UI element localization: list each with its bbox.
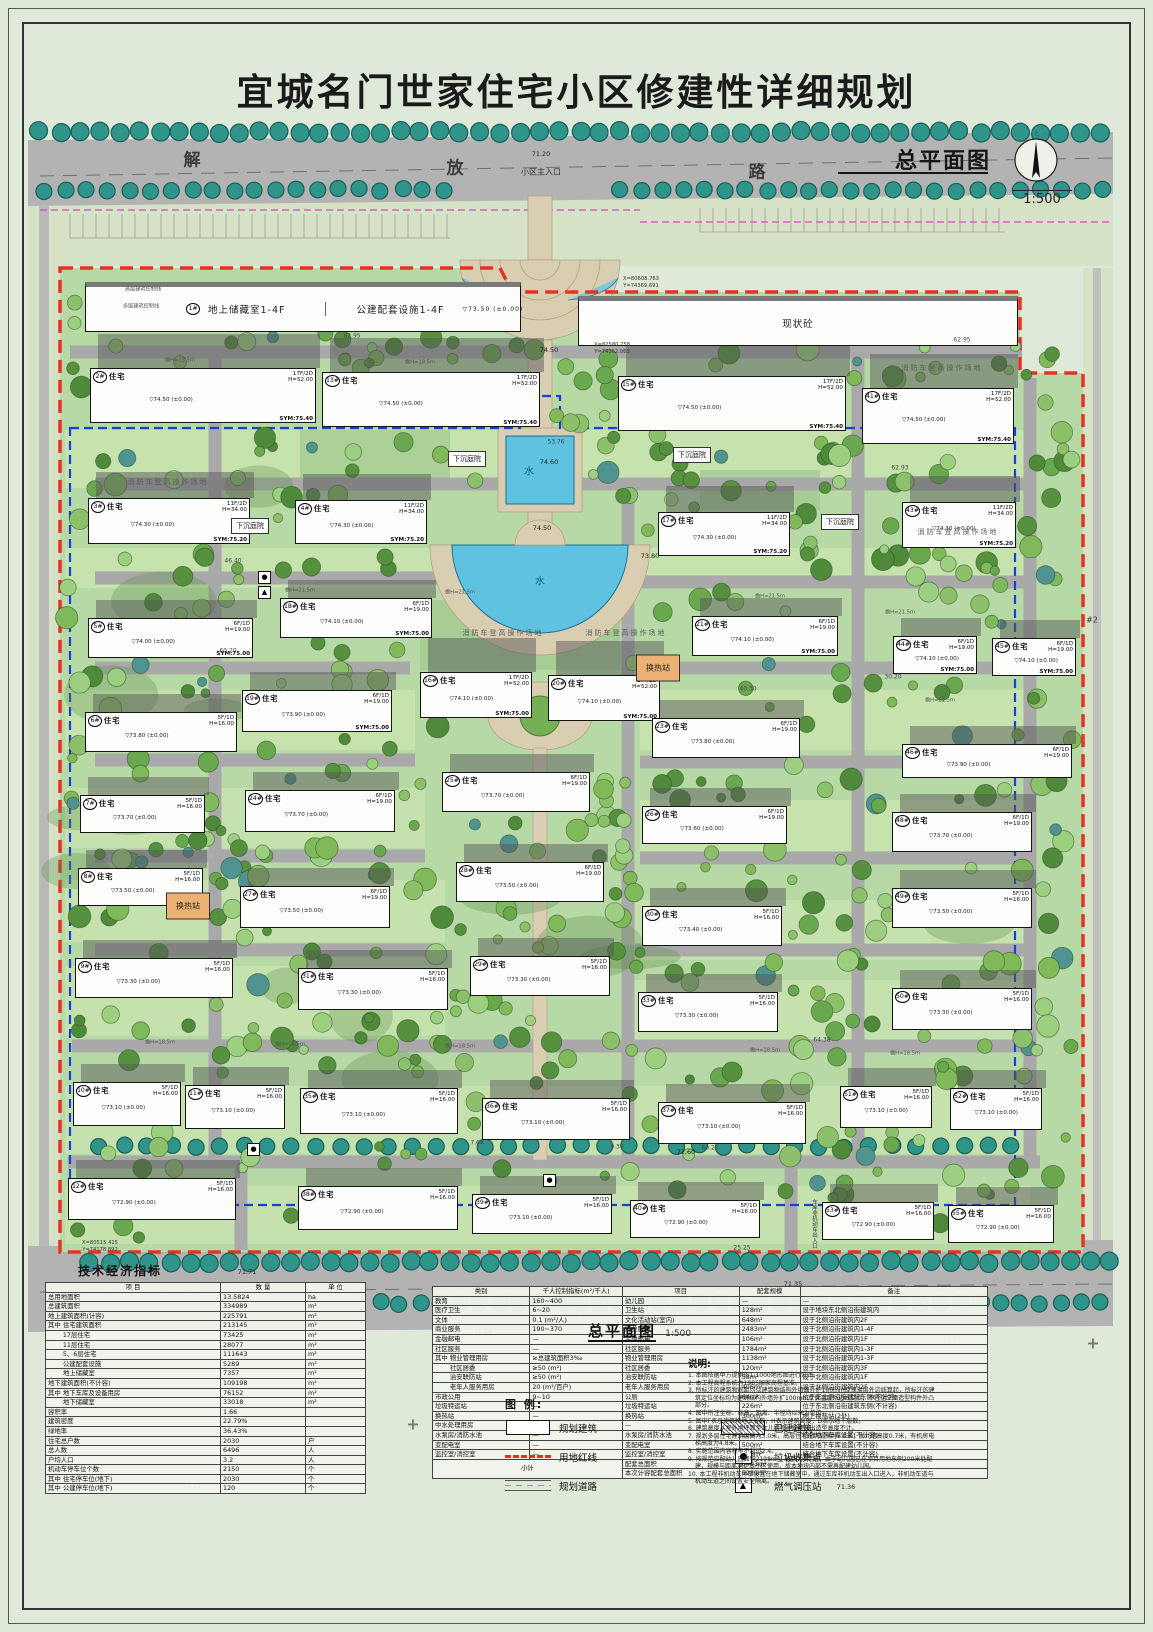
building-number: 7# [83,798,97,810]
building-shadow [250,672,396,690]
note-item: 8. 实施范围内容积率不超过2.4。 [688,1448,938,1456]
building-floors-height: 5F/1DH=16.00 [153,1085,178,1098]
note-item: 10. 本工程非机动车停车设置在地下储藏室中，通过车库非机动车出入口进入，非机动… [688,1471,938,1486]
annotation-tiny: 高层建筑控制线 [125,286,161,293]
building-elevation: ▽74.50 (±0.00) [379,401,423,407]
annotation-fire: 消防车登高操作场地 [128,477,209,487]
building-type-label: 住宅 [658,996,674,1006]
building-elevation: ▽73.40 (±0.00) [679,927,723,933]
building-type-label: 住宅 [662,810,678,820]
annotation-elev: 74.60 [540,458,559,466]
annotation-cross: + [406,1415,419,1434]
building-floors-height: 5F/1DH=16.00 [257,1088,282,1101]
building-type-label: 住宅 [672,722,688,732]
building-type-label: 住宅 [502,1102,518,1112]
building-sym-elevation: SYM:75.40 [809,424,843,430]
building-number: 45# [995,641,1010,653]
annotation-elev: 74.50 [540,346,559,354]
building-type-label: 住宅 [913,640,929,650]
plan-subtitle: 总平面图 1:500 [588,1320,691,1341]
building-type-label: 住宅 [476,866,492,876]
building-shadow [306,950,452,968]
building-9: 9#住宅▽73.30 (±0.00)5F/1DH=16.00 [75,958,233,998]
garbage-point-icon: ● [258,571,271,584]
building-number: 37# [661,1105,676,1117]
building-elevation: ▽73.70 (±0.00) [481,793,525,799]
building-number: 53# [825,1205,840,1217]
building-number: 55# [951,1208,966,1220]
building-type-label: 住宅 [314,504,330,514]
annotation-wlbl: 水 [524,463,534,478]
building-shadow [900,870,1036,888]
building-elevation: ▽74.50 (±0.00) [902,417,946,423]
public-facility-label: 公建配套设施1-4F [325,302,444,316]
annotation-dim: 40.30 [739,686,756,693]
building-elevation: ▽73.10 (±0.00) [521,1120,565,1126]
building-type-label: 住宅 [262,694,278,704]
building-type-label: 住宅 [922,748,938,758]
annotation-lbl: #2 [1086,616,1098,625]
building-sym-elevation: SYM:75.00 [495,711,529,717]
building-number: 9# [78,961,92,973]
building-floors-height: 17F/2DH=52.00 [986,391,1011,404]
building-number: 20# [551,678,566,690]
building-44: 44#住宅▽74.10 (±0.00)6F/1DH=19.00SYM:75.00 [893,636,977,674]
building-36: 36#住宅▽73.10 (±0.00)5F/1DH=16.00 [482,1098,630,1140]
building-type-label: 住宅 [107,502,123,512]
building-floors-height: 17F/2DH=52.00 [504,675,529,688]
building-shadow [88,777,209,795]
building-type-label: 住宅 [662,910,678,920]
building-elevation: ▽73.10 (±0.00) [697,1124,741,1130]
building-number: 31# [301,971,316,983]
road-name-char: 解 [184,146,201,171]
indicators-table: 项 目数 量单 位总用地面积13.5824ha总建筑面积334989m²地上建筑… [45,1282,366,1494]
annotation-fire: 消防车登高操作场地 [586,628,667,638]
notes-title: 说明: [688,1356,938,1370]
building-elevation: ▽73.10 (±0.00) [509,1215,553,1221]
indicators-col-header: 单 位 [306,1283,366,1293]
building-elevation: ▽74.10 (±0.00) [450,696,494,702]
building-elevation: ▽74.00 (±0.00) [131,639,175,645]
building-number: 6# [88,715,102,727]
building-elevation: ▽73.60 (±0.00) [680,826,724,832]
building-elevation: ▽73.50 (±0.00) [495,883,539,889]
building-floors-height: 5F/1DH=16.00 [904,1089,929,1102]
building-elevation: ▽73.50 (±0.00) [279,908,323,914]
annotation-fire: 消防车登高操作场地 [902,363,983,373]
table-row: 住宅总户数2030户 [46,1436,366,1446]
table-row: 其中 公建停车位(地下)120个 [46,1484,366,1494]
garbage-point-icon: ● [247,1143,260,1156]
building-floors-height: 6F/1DH=19.00 [1004,815,1029,828]
building-2: 2#住宅▽74.50 (±0.00)17F/2DH=52.00SYM:75.40 [90,368,316,423]
building-shadow [910,476,1020,502]
plan-title-label: 总平面图 [895,143,991,175]
annotation-hx: 换热站 [166,893,210,920]
building-type-label: 住宅 [265,794,281,804]
building-sym-elevation: SYM:75.00 [940,667,974,673]
building-type-label: 住宅 [260,890,276,900]
annotation-coord: Y=74362.063 [594,349,630,355]
building-shadow [958,1070,1046,1088]
table-row: 地上建筑面积(计容)225791m² [46,1311,366,1321]
building-floors-height: 17F/2DH=52.00 [818,379,843,392]
building-floors-height: 5F/1DH=16.00 [754,909,779,922]
building-elevation: ▽72.90 (±0.00) [664,1220,708,1226]
annotation-tiny: 檐H=18.5m [750,1047,780,1054]
building-30: 30#住宅▽73.40 (±0.00)5F/1DH=16.00 [642,906,782,946]
building-shadow [248,868,394,886]
building-floors-height: 5F/1DH=16.00 [205,961,230,974]
building-shadow [96,600,257,618]
building-sym-elevation: SYM:75.40 [279,416,313,422]
annotation-tiny: 檐H=21.5m [755,593,785,600]
building-floors-height: 5F/1DH=16.00 [732,1203,757,1216]
building-elevation: ▽73.30 (±0.00) [507,977,551,983]
building-floors-height: 11F/2DH=34.00 [988,505,1013,518]
building-51: 51#住宅▽73.10 (±0.00)5F/1DH=16.00 [840,1086,932,1128]
storage-label: 地上储藏室1-4F [208,302,285,316]
building-46: 46#住宅▽73.90 (±0.00)6F/1DH=19.00 [902,744,1072,778]
annotation-tiny: 檐H=21.5m [925,697,955,704]
annotation-tiny: 檐H=21.5m [285,587,315,594]
building-6: 6#住宅▽73.80 (±0.00)5F/1DH=16.00 [85,712,237,752]
building-39: 39#住宅▽73.10 (±0.00)5F/1DH=16.00 [472,1194,612,1234]
building-floors-height: 5F/1DH=16.00 [430,1189,455,1202]
table-row: 户均人口3.2人 [46,1455,366,1465]
annotation-dim: 7.64 [470,1140,483,1147]
building-number: 28# [459,865,474,877]
plan-subtitle-scale: 1:500 [665,1329,691,1339]
building-number: 49# [895,891,910,903]
table-row: 社区服务—社区服务1784m²设于北侧沿街建筑内1-3F [433,1344,988,1354]
table-row: 5、6层住宅111643m² [46,1350,366,1360]
building-number: 21# [695,619,710,631]
building-floors-height: 5F/1DH=16.00 [1014,1091,1039,1104]
annotation-tiny: 檐H=18.5m [890,1050,920,1057]
building-shadow [1000,620,1080,638]
building-11: 11#住宅▽73.10 (±0.00)5F/1DH=16.00 [185,1085,285,1129]
building-number: 13# [325,375,340,387]
building-elevation: ▽72.90 (±0.00) [976,1225,1020,1231]
table-row: 地下建筑面积(不计容)109198m² [46,1378,366,1388]
building-type-label: 住宅 [650,1204,666,1214]
building-31: 31#住宅▽73.30 (±0.00)5F/1DH=16.00 [298,968,448,1010]
building-elevation: ▽73.70 (±0.00) [284,812,328,818]
building-shadow [253,772,399,790]
building-floors-height: 17F/2DH=52.00 [512,375,537,388]
notes: 说明: 1. 本图依据甲方提供的1:1000地形图进行设计。2. 本工程高程系统… [688,1356,938,1486]
building-18: 18#住宅▽74.10 (±0.00)6F/1DH=19.00SYM:75.00 [280,598,432,638]
building-elevation: ▽72.90 (±0.00) [852,1222,896,1228]
building-shadow [81,1064,185,1082]
building-number: 40# [633,1203,648,1215]
annotation-tiny: 檐H=18.5m [445,1043,475,1050]
building-3: 3#住宅▽74.30 (±0.00)11F/2DH=34.00SYM:75.20 [88,498,250,544]
building-type-label: 住宅 [300,602,316,612]
building-elevation: ▽72.90 (±0.00) [340,1209,384,1215]
building-52: 52#住宅▽73.10 (±0.00)5F/1DH=16.00 [950,1088,1042,1130]
building-type-label: 住宅 [318,972,334,982]
building-number: 43# [905,505,920,517]
facilities-col-header: 备注 [800,1287,987,1297]
gas-station-icon: ▲ [258,586,271,599]
building-elevation: ▽74.10 (±0.00) [320,619,364,625]
building-elevation: ▽74.30 (±0.00) [131,522,175,528]
plan-title-underline [838,172,988,174]
building-shadow [193,1067,289,1085]
building-number: 2# [93,371,107,383]
building-shadow [478,938,614,956]
table-row: 金融邮电—金融邮电106m²设于北侧沿街建筑内1F [433,1334,988,1344]
building-floors-height: 5F/1DH=16.00 [584,1197,609,1210]
annotation-dim: 46.40 [224,558,241,565]
building-floors-height: 5F/1DH=16.00 [209,715,234,728]
building-26: 26#住宅▽73.60 (±0.00)6F/1DH=19.00 [642,806,787,844]
building-shadow [830,1184,938,1202]
building-number: 38# [301,1189,316,1201]
building-number: 29# [473,959,488,971]
annotation-tiny: 檐H=21.5m [885,609,915,616]
building-elevation: ▽73.70 (±0.00) [113,815,157,821]
building-23: 23#住宅▽73.80 (±0.00)6F/1DH=19.00 [652,718,800,758]
building-number: 26# [645,809,660,821]
building-shadow [490,1080,634,1098]
building-shadow [93,694,241,712]
building-elevation: ▽74.10 (±0.00) [730,637,774,643]
existing-building-label: 现状砼 [782,316,814,330]
building-41: 41#住宅▽74.50 (±0.00)17F/2DH=52.00SYM:75.4… [862,388,1014,444]
building-elevation: ▽73.30 (±0.00) [117,979,161,985]
storage-elevation: ▽73.50 (±0.00) [462,306,523,313]
table-row: 建筑密度22.79% [46,1417,366,1427]
annotation-fire: 消防车登高操作场地 [918,527,999,537]
building-28: 28#住宅▽73.50 (±0.00)6F/1DH=19.00 [456,862,604,902]
building-floors-height: 11F/2DH=34.00 [222,501,247,514]
annotation-coord: Y=74178.892 [82,1247,118,1253]
garbage-point-icon: ● [543,1174,556,1187]
building-shadow [660,700,804,718]
building-shadow [848,1068,936,1086]
road-name-char: 路 [749,158,766,183]
building-number: 18# [283,601,298,613]
building-type-label: 住宅 [1012,642,1028,652]
building-floors-height: 5F/1DH=16.00 [750,995,775,1008]
building-number: 17# [661,515,676,527]
building-40: 40#住宅▽72.90 (±0.00)5F/1DH=16.00 [630,1200,760,1238]
building-floors-height: 6F/1DH=19.00 [772,721,797,734]
building-number: 23# [655,721,670,733]
building-floors-height: 6F/1DH=19.00 [362,889,387,902]
building-elevation: ▽73.30 (±0.00) [675,1013,719,1019]
building-type-label: 住宅 [97,872,113,882]
building-number: 19# [245,693,260,705]
building-37: 37#住宅▽73.10 (±0.00)5F/1DH=16.00 [658,1102,806,1144]
building-type-label: 住宅 [912,992,928,1002]
annotation-coord: X=80608.763 [623,276,659,282]
annotation-elev: 73.80 [641,552,660,560]
annotation-dim: 60.20 [219,648,236,655]
red-line-icon [505,1449,551,1464]
annotation-lbl: 小区主入口 [521,167,561,178]
indicators-col-header: 项 目 [46,1283,221,1293]
building-elevation: ▽73.10 (±0.00) [102,1105,146,1111]
note-item: 7. 规划多层住宅建筑层高为3.0米，高层住宅建筑层高为3.0米；女儿墙高度0.… [688,1433,938,1448]
table-row: 11层住宅28077m² [46,1340,366,1350]
building-number: 52# [953,1091,968,1103]
annotation-box: 下沉庭院 [821,514,859,530]
facilities-col-header: 项目 [622,1287,739,1297]
building-floors-height: 6F/1DH=19.00 [562,775,587,788]
existing-building: 现状砼 [578,296,1018,346]
annotation-hx: 换热站 [636,655,680,682]
building-floors-height: 5F/1DH=16.00 [602,1101,627,1114]
table-row: 机动车停车位个数2150个 [46,1465,366,1475]
building-sym-elevation: SYM:75.00 [395,631,429,637]
indicators-col-header: 数 量 [221,1283,306,1293]
annotation-tiny: 多层建筑控制线 [123,303,159,310]
building-4: 4#住宅▽74.30 (±0.00)11F/2DH=34.00SYM:75.20 [295,500,427,544]
building-elevation: ▽73.30 (±0.00) [337,990,381,996]
note-item: 1. 本图依据甲方提供的1:1000地形图进行设计。 [688,1372,938,1380]
building-shadow [666,1084,810,1102]
building-number: 48# [895,815,910,827]
building-elevation: ▽73.80 (±0.00) [125,733,169,739]
building-elevation: ▽74.50 (±0.00) [149,397,193,403]
building-shadow [98,334,320,368]
building-floors-height: 6F/1DH=19.00 [576,865,601,878]
building-elevation: ▽73.70 (±0.00) [929,833,973,839]
building-shadow [306,1168,462,1186]
annotation-dim: 62.93 [891,465,908,472]
building-type-label: 住宅 [94,962,110,972]
building-elevation: ▽74.30 (±0.00) [330,523,374,529]
building-shadow [650,788,791,806]
annotation-box: 下沉庭院 [673,447,711,463]
annotation-dim: 62.95 [953,337,970,344]
building-16: 16#住宅▽74.10 (±0.00)17F/2DH=52.00SYM:75.0… [420,672,532,718]
building-shadow [86,850,207,868]
building-shadow [956,1187,1058,1205]
building-floors-height: 5F/1DH=16.00 [582,959,607,972]
building-19: 19#住宅▽73.90 (±0.00)6F/1DH=19.00SYM:75.00 [242,690,392,732]
annotation-elev: 71.20 [532,150,551,158]
building-number: 1# [186,303,200,315]
building-43: 43#住宅▽74.30 (±0.00)11F/2DH=34.00SYM:75.2… [902,502,1016,548]
building-shadow [900,970,1036,988]
legend-item-label: 规划道路 [559,1479,597,1493]
building-floors-height: 11F/2DH=34.00 [762,515,787,528]
building-type-label: 住宅 [99,799,115,809]
building-shadow [428,638,536,672]
building-type-label: 住宅 [638,380,654,390]
building-type-label: 住宅 [882,392,898,402]
building-number: 36# [485,1101,500,1113]
building-number: 24# [248,793,263,805]
building-floors-height: 5F/1DH=16.00 [1004,991,1029,1004]
building-floors-height: 5F/1DH=16.00 [778,1105,803,1118]
building-sym-elevation: SYM:75.40 [977,437,1011,443]
annotation-dim: 9.30 [610,1144,623,1151]
building-type-label: 住宅 [205,1089,221,1099]
building-type-label: 住宅 [490,960,506,970]
building-type-label: 住宅 [678,516,694,526]
building-sym-elevation: SYM:75.00 [1039,669,1073,675]
page-title: 宜城名门世家住宅小区修建性详细规划 [0,62,1153,116]
building-29: 29#住宅▽73.30 (±0.00)5F/1DH=16.00 [470,956,610,996]
building-21: 21#住宅▽74.10 (±0.00)6F/1DH=19.00SYM:75.00 [692,616,838,656]
building-15: 15#住宅▽74.50 (±0.00)17F/2DH=52.00SYM:75.4… [618,376,846,431]
building-floors-height: 6F/1DH=19.00 [810,619,835,632]
building-floors-height: 5F/1DH=16.00 [208,1181,233,1194]
north-label: 北 [1033,131,1038,138]
building-elevation: ▽74.10 (±0.00) [1014,658,1058,664]
building-number: 46# [905,747,920,759]
building-shadow [666,486,794,512]
facilities-col-header: 配套规模 [739,1287,800,1297]
building-number: 15# [621,379,636,391]
building-number: 35# [303,1091,318,1103]
building-floors-height: 6F/1DH=19.00 [1048,641,1073,654]
building-number: 4# [298,503,312,515]
plan-subtitle-name: 总平面图 [588,1322,656,1342]
building-floors-height: 5F/1DH=16.00 [906,1205,931,1218]
annotation-coord: X=82580.758 [594,342,630,348]
building-floors-height: 5F/1DH=16.00 [175,871,200,884]
building-sym-elevation: SYM:75.00 [801,649,835,655]
building-17: 17#住宅▽74.30 (±0.00)11F/2DH=34.00SYM:75.2… [658,512,790,556]
building-type-label: 住宅 [922,506,938,516]
building-sym-elevation: SYM:75.20 [213,537,247,543]
building-shadow [464,844,608,862]
building-type-label: 住宅 [318,1190,334,1200]
building-number: 5# [91,621,105,633]
building-floors-height: 5F/1DH=16.00 [177,798,202,811]
building-elevation: ▽74.50 (±0.00) [678,405,722,411]
building-type-label: 住宅 [462,776,478,786]
building-49: 49#住宅▽73.50 (±0.00)5F/1DH=16.00 [892,888,1032,928]
building-floors-height: 6F/1DH=19.00 [364,693,389,706]
building-sym-elevation: SYM:75.20 [753,549,787,555]
building-elevation: ▽73.90 (±0.00) [281,712,325,718]
table-row: 其中 住宅停车位(地下)2030个 [46,1474,366,1484]
annotation-tiny: 檐H=18.5m [405,359,435,366]
building-shadow [303,474,431,500]
building-45: 45#住宅▽74.10 (±0.00)6F/1DH=19.00SYM:75.00 [992,638,1076,676]
annotation-dim: 64.38 [813,1037,830,1044]
building-type-label: 住宅 [440,676,456,686]
building-elevation: ▽73.90 (±0.00) [947,762,991,768]
site-plan-sheet: 宜城名门世家住宅小区修建性详细规划 解 放 路 总平面图 1:500 北 1# … [0,0,1153,1632]
building-type-label: 住宅 [912,892,928,902]
annotation-elev: 74.50 [533,524,552,532]
legend-item-label: 用地红线 [559,1450,597,1464]
building-type-label: 住宅 [912,816,928,826]
building-elevation: ▽73.80 (±0.00) [691,739,735,745]
building-floors-height: 5F/1DH=16.00 [1026,1208,1051,1221]
building-shadow [626,342,850,376]
building-elevation: ▽73.50 (±0.00) [929,909,973,915]
table-row: 地下储藏室33018m² [46,1398,366,1408]
building-53: 53#住宅▽72.90 (±0.00)5F/1DH=16.00 [822,1202,934,1240]
annotation-dim: 25.25 [733,1245,750,1252]
building-type-label: 住宅 [104,716,120,726]
building-type-label: 住宅 [712,620,728,630]
table-row: 容积率1.66 [46,1407,366,1417]
building-floors-height: 6F/1DH=19.00 [367,793,392,806]
planned-building-icon [505,1420,551,1435]
